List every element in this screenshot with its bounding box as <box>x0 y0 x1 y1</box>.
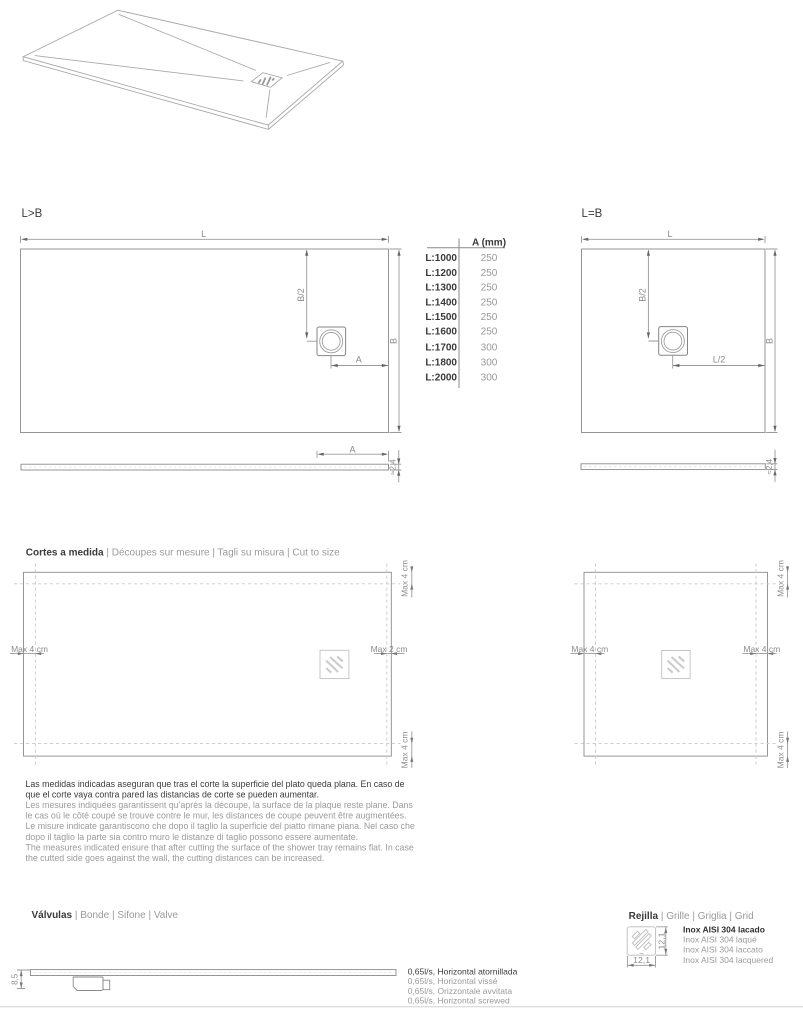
svg-text:≈2,4: ≈2,4 <box>389 459 398 475</box>
svg-text:Max 2 cm: Max 2 cm <box>371 644 408 654</box>
svg-text:Inox AISI 304 lacado: Inox AISI 304 lacado <box>683 924 765 934</box>
svg-text:L:1800: L:1800 <box>425 358 457 369</box>
svg-text:Max 4 cm: Max 4 cm <box>743 644 780 654</box>
svg-text:L:2000: L:2000 <box>425 373 457 384</box>
svg-text:0,65l/s, Horizontal vissé: 0,65l/s, Horizontal vissé <box>408 976 498 986</box>
svg-text:the cutted side goes against t: the cutted side goes against the wall, t… <box>26 853 325 863</box>
svg-text:Max 4 cm: Max 4 cm <box>400 731 410 768</box>
svg-text:Válvulas | Bonde | Sifone | Va: Válvulas | Bonde | Sifone | Valve <box>32 910 179 921</box>
svg-text:250: 250 <box>481 298 498 309</box>
svg-text:250: 250 <box>481 327 498 338</box>
svg-text:L:1400: L:1400 <box>425 298 457 309</box>
svg-text:B: B <box>389 338 399 344</box>
svg-text:que el corte vaya contra pared: que el corte vaya contra pared las dista… <box>26 789 319 799</box>
svg-text:Inox AISI 304 lacquered: Inox AISI 304 lacquered <box>683 955 774 965</box>
svg-text:Inox AISI 304 laqué: Inox AISI 304 laqué <box>683 935 757 945</box>
svg-text:L:1700: L:1700 <box>425 343 457 354</box>
svg-text:L>B: L>B <box>22 208 43 220</box>
svg-text:250: 250 <box>481 283 498 294</box>
svg-text:dopo il taglio la parte sia co: dopo il taglio la parte sia contro muro … <box>26 832 359 842</box>
svg-text:B/2: B/2 <box>638 288 648 302</box>
svg-text:L: L <box>667 229 672 239</box>
svg-text:The measures indicated ensure: The measures indicated ensure that after… <box>26 842 414 852</box>
svg-text:L=B: L=B <box>582 208 603 220</box>
svg-text:L:1500: L:1500 <box>425 312 457 323</box>
svg-text:12,1: 12,1 <box>633 955 650 965</box>
svg-text:12,1: 12,1 <box>656 932 666 949</box>
svg-text:250: 250 <box>481 253 498 264</box>
svg-text:0,65l/s, Horizontal screwed: 0,65l/s, Horizontal screwed <box>408 996 510 1006</box>
svg-text:Les mesures indiquées garantis: Les mesures indiquées garantissent qu’ap… <box>26 800 414 810</box>
svg-text:Cortes a medida | Découpes sur: Cortes a medida | Découpes sur mesure | … <box>26 548 340 559</box>
svg-text:Max 4 cm: Max 4 cm <box>775 731 785 768</box>
svg-text:8,5: 8,5 <box>11 973 20 985</box>
svg-text:250: 250 <box>481 268 498 279</box>
svg-text:A: A <box>356 355 362 365</box>
svg-text:250: 250 <box>481 312 498 323</box>
svg-text:L: L <box>201 229 206 239</box>
svg-text:L:1300: L:1300 <box>425 283 457 294</box>
svg-text:L:1000: L:1000 <box>425 253 457 264</box>
svg-text:300: 300 <box>481 358 498 369</box>
svg-text:0,65l/s, Orizzontale avvitata: 0,65l/s, Orizzontale avvitata <box>408 986 513 996</box>
svg-text:Inox AISI 304 laccato: Inox AISI 304 laccato <box>683 945 763 955</box>
svg-text:L:1600: L:1600 <box>425 327 457 338</box>
svg-text:B: B <box>765 338 775 344</box>
svg-text:L/2: L/2 <box>713 355 726 365</box>
svg-text:Max 4 cm: Max 4 cm <box>11 644 48 654</box>
svg-text:Max 4 cm: Max 4 cm <box>400 560 410 597</box>
svg-text:A: A <box>349 444 355 454</box>
svg-text:B/2: B/2 <box>296 288 306 302</box>
svg-text:L:1200: L:1200 <box>425 268 457 279</box>
svg-text:300: 300 <box>481 343 498 354</box>
svg-text:≈2,4: ≈2,4 <box>765 458 774 474</box>
svg-text:Le misure indicate garantiscon: Le misure indicate garantiscono che dopo… <box>26 821 415 831</box>
svg-text:0,65l/s, Horizontal atornillad: 0,65l/s, Horizontal atornillada <box>408 966 518 976</box>
svg-text:300: 300 <box>481 373 498 384</box>
svg-text:Max 4 cm: Max 4 cm <box>571 644 608 654</box>
svg-text:Rejilla | Grille | Griglia | G: Rejilla | Grille | Griglia | Grid <box>629 911 754 922</box>
svg-text:Max 4 cm: Max 4 cm <box>775 560 785 597</box>
svg-text:A (mm): A (mm) <box>472 237 506 248</box>
svg-text:le cas où le côté coupé se tro: le cas où le côté coupé se trouve contre… <box>26 811 407 821</box>
svg-text:Las medidas indicadas aseguran: Las medidas indicadas aseguran que tras … <box>26 779 405 789</box>
